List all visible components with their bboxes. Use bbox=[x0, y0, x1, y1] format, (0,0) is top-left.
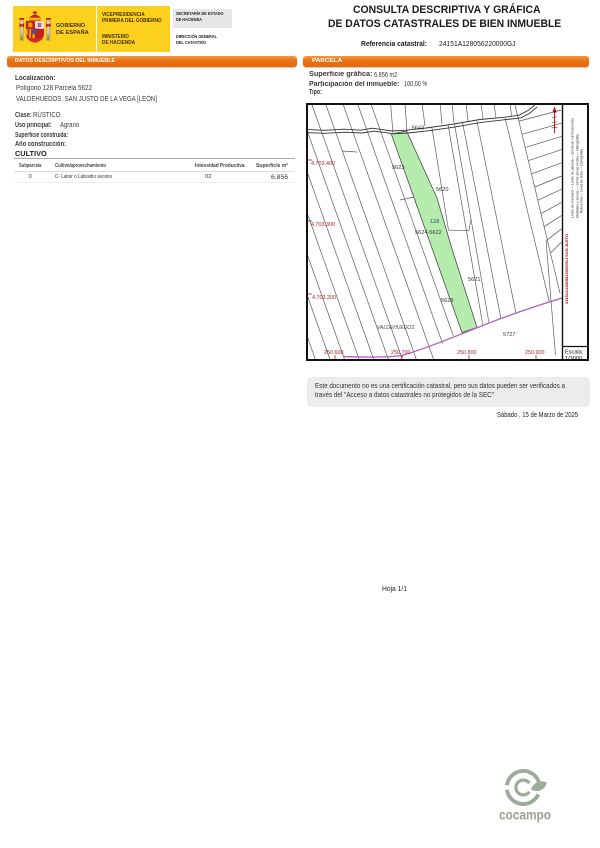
svg-text:250.900: 250.900 bbox=[525, 350, 545, 356]
svg-text:5629: 5629 bbox=[441, 298, 453, 304]
svg-text:5624-5622: 5624-5622 bbox=[415, 230, 442, 236]
svg-text:4.703.200: 4.703.200 bbox=[312, 295, 336, 301]
svg-text:24151A128056220000GJ SAN JUSTO: 24151A128056220000GJ SAN JUSTO bbox=[564, 234, 569, 304]
svg-text:250.800: 250.800 bbox=[457, 350, 477, 356]
svg-text:250.600: 250.600 bbox=[324, 350, 344, 356]
svg-text:5643: 5643 bbox=[412, 125, 424, 131]
svg-text:Escala:: Escala: bbox=[565, 350, 584, 356]
svg-text:5623: 5623 bbox=[392, 165, 404, 171]
svg-text:5621: 5621 bbox=[468, 277, 480, 283]
svg-text:128: 128 bbox=[430, 219, 439, 225]
svg-text:cocampo: cocampo bbox=[499, 807, 551, 822]
svg-text:4.703.300: 4.703.300 bbox=[311, 222, 335, 228]
svg-text:Referencia — Línea de texto —: Referencia — Línea de texto — Cartografí… bbox=[580, 149, 584, 213]
svg-text:5620: 5620 bbox=[436, 187, 448, 193]
svg-text:VALDEHUEDOS: VALDEHUEDOS bbox=[377, 325, 415, 331]
svg-text:250.700: 250.700 bbox=[391, 350, 411, 356]
svg-text:5727: 5727 bbox=[503, 332, 515, 338]
svg-text:Límite de manzana — Límite de: Límite de manzana — Límite de parcela — … bbox=[571, 118, 575, 218]
svg-text:4.703.400: 4.703.400 bbox=[311, 161, 335, 167]
